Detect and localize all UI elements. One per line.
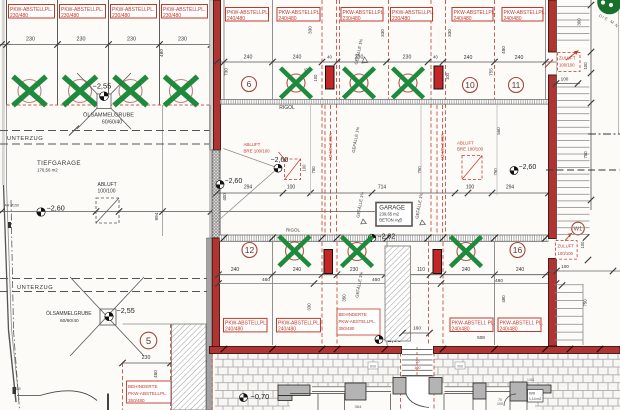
svg-text:ZULUFT: ZULUFT bbox=[559, 56, 576, 61]
svg-text:Ø150: Ø150 bbox=[13, 387, 21, 391]
svg-text:UNTERZUG: UNTERZUG bbox=[7, 136, 43, 142]
svg-text:240/480: 240/480 bbox=[279, 16, 297, 22]
svg-text:5: 5 bbox=[146, 336, 151, 347]
svg-text:294: 294 bbox=[244, 185, 253, 191]
svg-text:240: 240 bbox=[516, 267, 525, 273]
svg-text:480: 480 bbox=[501, 295, 506, 303]
svg-text:AR Ø150: AR Ø150 bbox=[5, 204, 19, 208]
svg-text:100: 100 bbox=[583, 62, 588, 70]
svg-text:480: 480 bbox=[495, 278, 503, 284]
svg-text:460: 460 bbox=[372, 277, 380, 283]
svg-text:350/480: 350/480 bbox=[339, 326, 355, 331]
svg-text:755: 755 bbox=[489, 68, 494, 76]
svg-text:968: 968 bbox=[457, 365, 463, 369]
svg-text:60/60/40: 60/60/40 bbox=[102, 120, 122, 126]
svg-text:230/480: 230/480 bbox=[10, 13, 28, 19]
svg-text:100: 100 bbox=[445, 72, 450, 80]
svg-text:240/480: 240/480 bbox=[500, 326, 518, 332]
svg-text:176,56 m2: 176,56 m2 bbox=[37, 168, 58, 173]
svg-text:70: 70 bbox=[416, 360, 420, 364]
svg-text:750: 750 bbox=[583, 299, 588, 307]
svg-text:BRE 100/100: BRE 100/100 bbox=[457, 147, 484, 152]
svg-text:100: 100 bbox=[415, 366, 421, 370]
svg-text:160: 160 bbox=[413, 326, 421, 332]
svg-text:100/100: 100/100 bbox=[558, 251, 574, 256]
svg-text:1461: 1461 bbox=[527, 378, 535, 382]
svg-text:110: 110 bbox=[417, 267, 425, 273]
svg-text:350/480: 350/480 bbox=[128, 398, 145, 403]
svg-text:330: 330 bbox=[447, 29, 452, 37]
svg-text:100/100: 100/100 bbox=[98, 189, 116, 195]
svg-text:330: 330 bbox=[308, 26, 313, 34]
svg-text:508: 508 bbox=[477, 335, 485, 340]
svg-text:−2,60: −2,60 bbox=[271, 157, 289, 164]
svg-text:ÖLSAMMELGRUBE: ÖLSAMMELGRUBE bbox=[46, 310, 92, 317]
svg-text:UZ UK=2,20m: UZ UK=2,20m bbox=[440, 133, 445, 160]
svg-text:240: 240 bbox=[244, 55, 253, 61]
svg-text:230: 230 bbox=[403, 55, 412, 61]
svg-text:400: 400 bbox=[222, 193, 227, 201]
svg-text:40: 40 bbox=[327, 55, 332, 60]
svg-text:240/480: 240/480 bbox=[278, 327, 296, 333]
svg-text:−2,60: −2,60 bbox=[519, 164, 537, 171]
svg-text:60/60/40: 60/60/40 bbox=[60, 318, 79, 324]
svg-text:730: 730 bbox=[224, 68, 229, 76]
svg-text:808: 808 bbox=[370, 365, 376, 369]
svg-text:100: 100 bbox=[561, 264, 569, 269]
svg-text:BETON Aγβ: BETON Aγβ bbox=[379, 217, 402, 222]
svg-text:230: 230 bbox=[178, 37, 187, 43]
svg-text:294: 294 bbox=[506, 185, 515, 191]
svg-text:10: 10 bbox=[465, 80, 475, 90]
svg-text:16: 16 bbox=[513, 245, 523, 255]
svg-text:RIGOL: RIGOL bbox=[286, 228, 301, 233]
svg-text:750: 750 bbox=[583, 151, 588, 159]
svg-text:−0,70: −0,70 bbox=[251, 392, 270, 401]
svg-text:240: 240 bbox=[462, 267, 471, 273]
svg-text:−2,55: −2,55 bbox=[93, 82, 112, 91]
svg-text:ÖLSAMMELGRUBE: ÖLSAMMELGRUBE bbox=[83, 112, 134, 119]
svg-text:BEHINDERTE: BEHINDERTE bbox=[128, 384, 158, 389]
svg-text:750: 750 bbox=[311, 166, 316, 174]
svg-text:994: 994 bbox=[154, 212, 160, 220]
svg-text:40: 40 bbox=[433, 55, 438, 60]
svg-text:240/480: 240/480 bbox=[454, 16, 472, 22]
svg-text:6: 6 bbox=[247, 79, 252, 89]
svg-text:100: 100 bbox=[580, 241, 585, 249]
svg-text:100/100: 100/100 bbox=[559, 63, 575, 68]
svg-text:ZULUFT: ZULUFT bbox=[558, 244, 575, 249]
svg-text:230/480: 230/480 bbox=[61, 13, 79, 19]
svg-text:BRE 100/100: BRE 100/100 bbox=[244, 149, 271, 154]
svg-text:230: 230 bbox=[26, 37, 35, 43]
svg-text:100: 100 bbox=[287, 185, 296, 191]
svg-text:−2,55: −2,55 bbox=[117, 306, 135, 315]
svg-text:100: 100 bbox=[561, 77, 569, 82]
svg-text:240/480: 240/480 bbox=[452, 326, 470, 332]
svg-text:240: 240 bbox=[231, 267, 240, 273]
svg-text:239,65 m2: 239,65 m2 bbox=[379, 212, 399, 217]
svg-text:1,14 m2: 1,14 m2 bbox=[529, 397, 541, 401]
svg-text:330: 330 bbox=[307, 303, 312, 311]
svg-text:100: 100 bbox=[302, 164, 307, 172]
svg-text:UNTERZUG: UNTERZUG bbox=[17, 285, 53, 291]
svg-text:300: 300 bbox=[577, 18, 582, 26]
svg-text:PKW-ABSTELLPL.: PKW-ABSTELLPL. bbox=[128, 391, 167, 396]
svg-text:ABLUFT: ABLUFT bbox=[244, 142, 261, 147]
svg-text:480: 480 bbox=[159, 49, 165, 57]
svg-text:−2,60: −2,60 bbox=[225, 178, 243, 185]
svg-text:230/480: 230/480 bbox=[163, 13, 181, 19]
svg-text:ABLUFT: ABLUFT bbox=[98, 182, 117, 188]
svg-text:240: 240 bbox=[293, 267, 302, 273]
svg-text:230/480: 230/480 bbox=[343, 16, 361, 22]
svg-text:RIGOL: RIGOL bbox=[279, 105, 295, 111]
svg-text:364: 364 bbox=[355, 404, 362, 409]
svg-text:100: 100 bbox=[497, 402, 503, 406]
svg-text:UZ UK=2,20m: UZ UK=2,20m bbox=[328, 133, 333, 160]
svg-text:230/480: 230/480 bbox=[112, 13, 130, 19]
svg-text:240/480: 240/480 bbox=[227, 16, 245, 22]
svg-text:W9: W9 bbox=[529, 391, 536, 396]
svg-text:240: 240 bbox=[515, 55, 524, 61]
svg-text:460: 460 bbox=[262, 277, 270, 283]
svg-text:240: 240 bbox=[293, 55, 302, 61]
svg-text:11: 11 bbox=[512, 80, 521, 90]
svg-text:230: 230 bbox=[142, 355, 151, 361]
svg-text:TIEFGARAGE: TIEFGARAGE bbox=[37, 160, 81, 167]
svg-text:240: 240 bbox=[464, 55, 473, 61]
svg-text:230: 230 bbox=[350, 267, 359, 273]
svg-text:230/480: 230/480 bbox=[392, 16, 410, 22]
svg-text:230: 230 bbox=[77, 37, 86, 43]
svg-text:480: 480 bbox=[153, 370, 158, 378]
svg-text:12: 12 bbox=[245, 245, 255, 255]
svg-text:714: 714 bbox=[378, 185, 387, 191]
svg-text:240/480: 240/480 bbox=[504, 16, 522, 22]
svg-text:BEHINDERTE: BEHINDERTE bbox=[339, 312, 367, 317]
svg-text:230: 230 bbox=[127, 37, 136, 43]
svg-text:350: 350 bbox=[342, 294, 347, 302]
svg-text:480: 480 bbox=[501, 46, 506, 54]
svg-text:100: 100 bbox=[313, 74, 318, 82]
svg-text:330: 330 bbox=[380, 29, 385, 37]
svg-text:240/480: 240/480 bbox=[225, 327, 243, 333]
svg-text:PKW-ABSTELLPL.: PKW-ABSTELLPL. bbox=[339, 319, 376, 324]
svg-text:100: 100 bbox=[466, 185, 475, 191]
svg-text:ABLUFT: ABLUFT bbox=[457, 141, 474, 146]
